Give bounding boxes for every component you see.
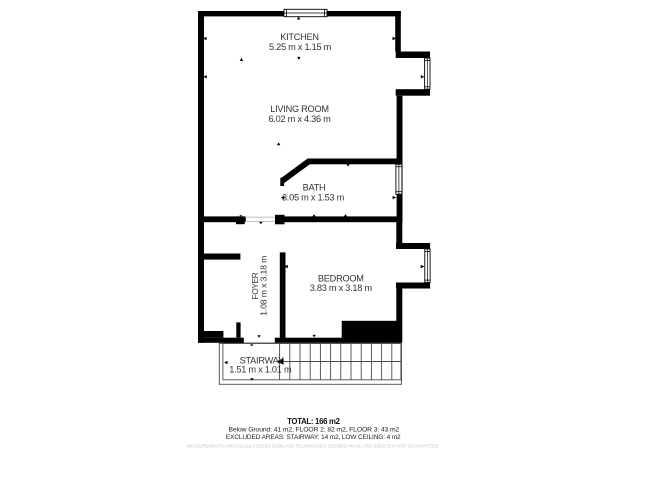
svg-text:1.51 m x 1.01 m: 1.51 m x 1.01 m bbox=[229, 365, 292, 375]
svg-text:LIVING ROOM: LIVING ROOM bbox=[270, 104, 329, 114]
svg-text:Below Ground: 41 m2, FLOOR 2:: Below Ground: 41 m2, FLOOR 2: 82 m2, FLO… bbox=[229, 427, 400, 434]
svg-text:3.05 m x 1.53 m: 3.05 m x 1.53 m bbox=[282, 192, 345, 202]
svg-text:BEDROOM: BEDROOM bbox=[318, 273, 364, 283]
svg-text:5.25 m x 1.15 m: 5.25 m x 1.15 m bbox=[269, 42, 332, 52]
svg-text:BATH: BATH bbox=[303, 182, 326, 192]
svg-text:MEASUREMENTS ARE CALCULATED BY: MEASUREMENTS ARE CALCULATED BY CUBICASA … bbox=[187, 444, 440, 449]
svg-text:KITCHEN: KITCHEN bbox=[280, 32, 319, 42]
svg-text:TOTAL: 166 m2: TOTAL: 166 m2 bbox=[287, 417, 341, 426]
svg-text:EXCLUDED AREAS: STAIRWAY: 14 m: EXCLUDED AREAS: STAIRWAY: 14 m2, LOW CEI… bbox=[226, 434, 401, 441]
svg-text:1.08 m x 3.18 m: 1.08 m x 3.18 m bbox=[259, 256, 269, 316]
svg-text:6.02 m x 4.36 m: 6.02 m x 4.36 m bbox=[268, 114, 331, 124]
svg-text:3.83 m x 3.18 m: 3.83 m x 3.18 m bbox=[310, 283, 373, 293]
